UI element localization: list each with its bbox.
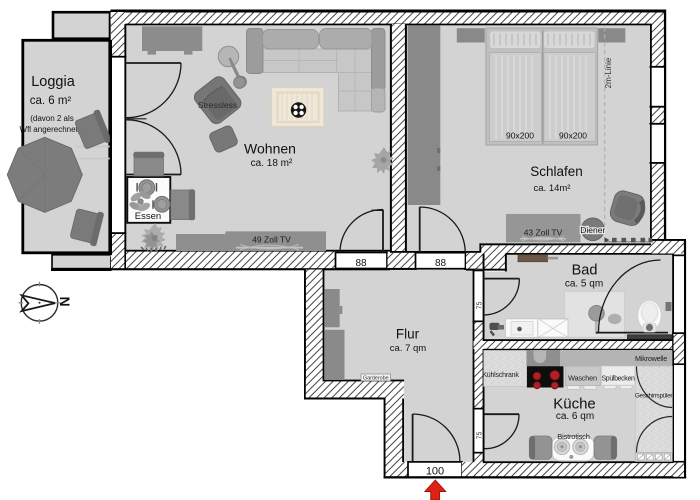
- svg-text:Garderobe: Garderobe: [363, 376, 389, 382]
- svg-text:90x200: 90x200: [559, 131, 587, 141]
- svg-text:ca. 14m²: ca. 14m²: [534, 183, 571, 194]
- svg-text:ca. 6 m²: ca. 6 m²: [30, 95, 72, 107]
- svg-text:N: N: [57, 297, 73, 307]
- svg-text:2m-Linie: 2m-Linie: [604, 57, 613, 88]
- svg-text:Spülbecken: Spülbecken: [601, 376, 635, 383]
- svg-text:ca. 6 qm: ca. 6 qm: [556, 411, 594, 422]
- svg-text:75: 75: [477, 432, 484, 440]
- svg-text:Wohnen: Wohnen: [244, 141, 296, 157]
- svg-text:ca. 5 qm: ca. 5 qm: [565, 279, 603, 290]
- svg-text:Flur: Flur: [396, 327, 420, 342]
- svg-text:Wfl angerechnet): Wfl angerechnet): [20, 125, 81, 134]
- svg-text:(davon 2 als: (davon 2 als: [30, 114, 74, 123]
- svg-text:ca. 7 qm: ca. 7 qm: [390, 343, 427, 354]
- svg-text:Essen: Essen: [135, 211, 161, 222]
- svg-text:88: 88: [435, 258, 447, 269]
- svg-text:Diener: Diener: [580, 225, 605, 235]
- svg-text:88: 88: [355, 258, 367, 269]
- svg-text:Mikrowelle: Mikrowelle: [635, 354, 667, 363]
- svg-text:43 Zoll TV: 43 Zoll TV: [524, 228, 563, 238]
- svg-text:Kühlschrank: Kühlschrank: [482, 372, 519, 379]
- svg-text:Stressless: Stressless: [198, 100, 237, 110]
- svg-text:Waschen: Waschen: [568, 374, 597, 383]
- svg-text:90x200: 90x200: [506, 131, 534, 141]
- svg-text:Geschirrspüler: Geschirrspüler: [635, 393, 674, 400]
- svg-text:Loggia: Loggia: [31, 74, 75, 90]
- svg-text:100: 100: [426, 466, 444, 478]
- svg-text:75: 75: [477, 302, 484, 310]
- svg-text:Schlafen: Schlafen: [530, 164, 583, 179]
- svg-text:ca. 18 m²: ca. 18 m²: [251, 158, 293, 169]
- svg-text:Bistrotisch: Bistrotisch: [557, 432, 589, 441]
- svg-text:Bad: Bad: [572, 263, 598, 279]
- svg-text:49 Zoll TV: 49 Zoll TV: [252, 234, 291, 244]
